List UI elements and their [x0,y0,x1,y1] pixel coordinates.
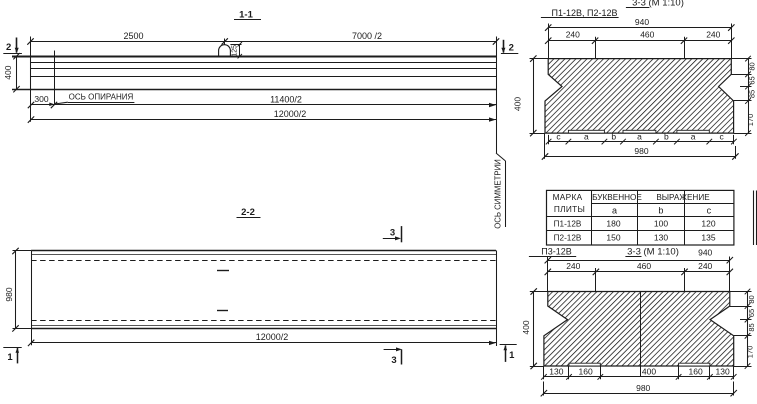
svg-text:a: a [612,205,617,215]
svg-text:135: 135 [701,233,715,243]
svg-text:130: 130 [654,233,668,243]
svg-text:1: 1 [7,352,13,363]
svg-text:940: 940 [698,247,712,257]
svg-text:980: 980 [4,287,14,301]
svg-text:11400/2: 11400/2 [270,95,302,105]
svg-text:400: 400 [642,366,656,376]
svg-text:b: b [664,132,669,142]
svg-text:2: 2 [6,42,11,53]
svg-text:125: 125 [231,45,238,57]
svg-text:150: 150 [606,233,620,243]
svg-text:1: 1 [509,350,515,361]
svg-text:П1-12В, П2-12В: П1-12В, П2-12В [552,8,618,18]
svg-text:85: 85 [748,90,757,98]
svg-text:ПЛИТЫ: ПЛИТЫ [554,204,585,214]
svg-text:240: 240 [706,30,720,40]
svg-text:160: 160 [579,366,593,376]
svg-text:c: c [719,132,724,142]
svg-text:b: b [611,132,616,142]
svg-text:b: b [658,205,663,215]
svg-text:460: 460 [640,30,654,40]
svg-text:85: 85 [747,323,756,331]
svg-text:12000/2: 12000/2 [274,109,307,119]
svg-text:a: a [637,132,642,142]
svg-text:3: 3 [391,355,396,366]
svg-text:2-2: 2-2 [241,207,255,218]
svg-text:180: 180 [606,219,620,229]
svg-text:80: 80 [748,62,757,70]
svg-text:130: 130 [716,366,730,376]
svg-text:БУКВЕННОЕ: БУКВЕННОЕ [592,193,642,202]
svg-text:160: 160 [689,366,703,376]
svg-text:a: a [691,132,696,142]
svg-text:940: 940 [635,17,649,27]
svg-text:65: 65 [748,76,757,84]
svg-text:980: 980 [636,383,650,393]
svg-text:80: 80 [747,295,756,303]
svg-text:ОСЬ СИММЕТРИИ: ОСЬ СИММЕТРИИ [494,159,503,229]
svg-text:2: 2 [509,43,514,54]
svg-text:12000/2: 12000/2 [256,332,289,342]
svg-text:ВЫРАЖЕНИЕ: ВЫРАЖЕНИЕ [656,193,710,202]
svg-text:3: 3 [390,227,395,238]
svg-text:980: 980 [634,146,648,156]
svg-text:7000 /2: 7000 /2 [352,31,382,41]
svg-text:240: 240 [698,261,712,271]
svg-text:2500: 2500 [123,31,143,41]
svg-text:300: 300 [34,94,48,104]
svg-text:400: 400 [521,320,531,334]
svg-text:П1-12В: П1-12В [554,220,582,229]
svg-text:170: 170 [746,114,755,127]
svg-text:460: 460 [637,261,651,271]
svg-text:170: 170 [746,346,755,359]
svg-text:a: a [584,132,589,142]
svg-text:65: 65 [747,309,756,317]
svg-text:120: 120 [701,219,715,229]
svg-text:ОСЬ ОПИРАНИЯ: ОСЬ ОПИРАНИЯ [69,93,134,102]
svg-text:400: 400 [3,65,13,79]
svg-text:400: 400 [513,97,523,111]
svg-text:240: 240 [566,261,580,271]
svg-text:c: c [707,205,712,215]
svg-text:3-3 (М 1:10): 3-3 (М 1:10) [627,247,679,258]
svg-text:1-1: 1-1 [239,10,253,21]
svg-text:100: 100 [654,219,668,229]
svg-text:240: 240 [566,30,580,40]
svg-text:П2-12В: П2-12В [554,234,582,243]
svg-text:МАРКА: МАРКА [553,192,583,202]
svg-text:130: 130 [549,366,563,376]
svg-text:П3-12В: П3-12В [541,247,572,257]
